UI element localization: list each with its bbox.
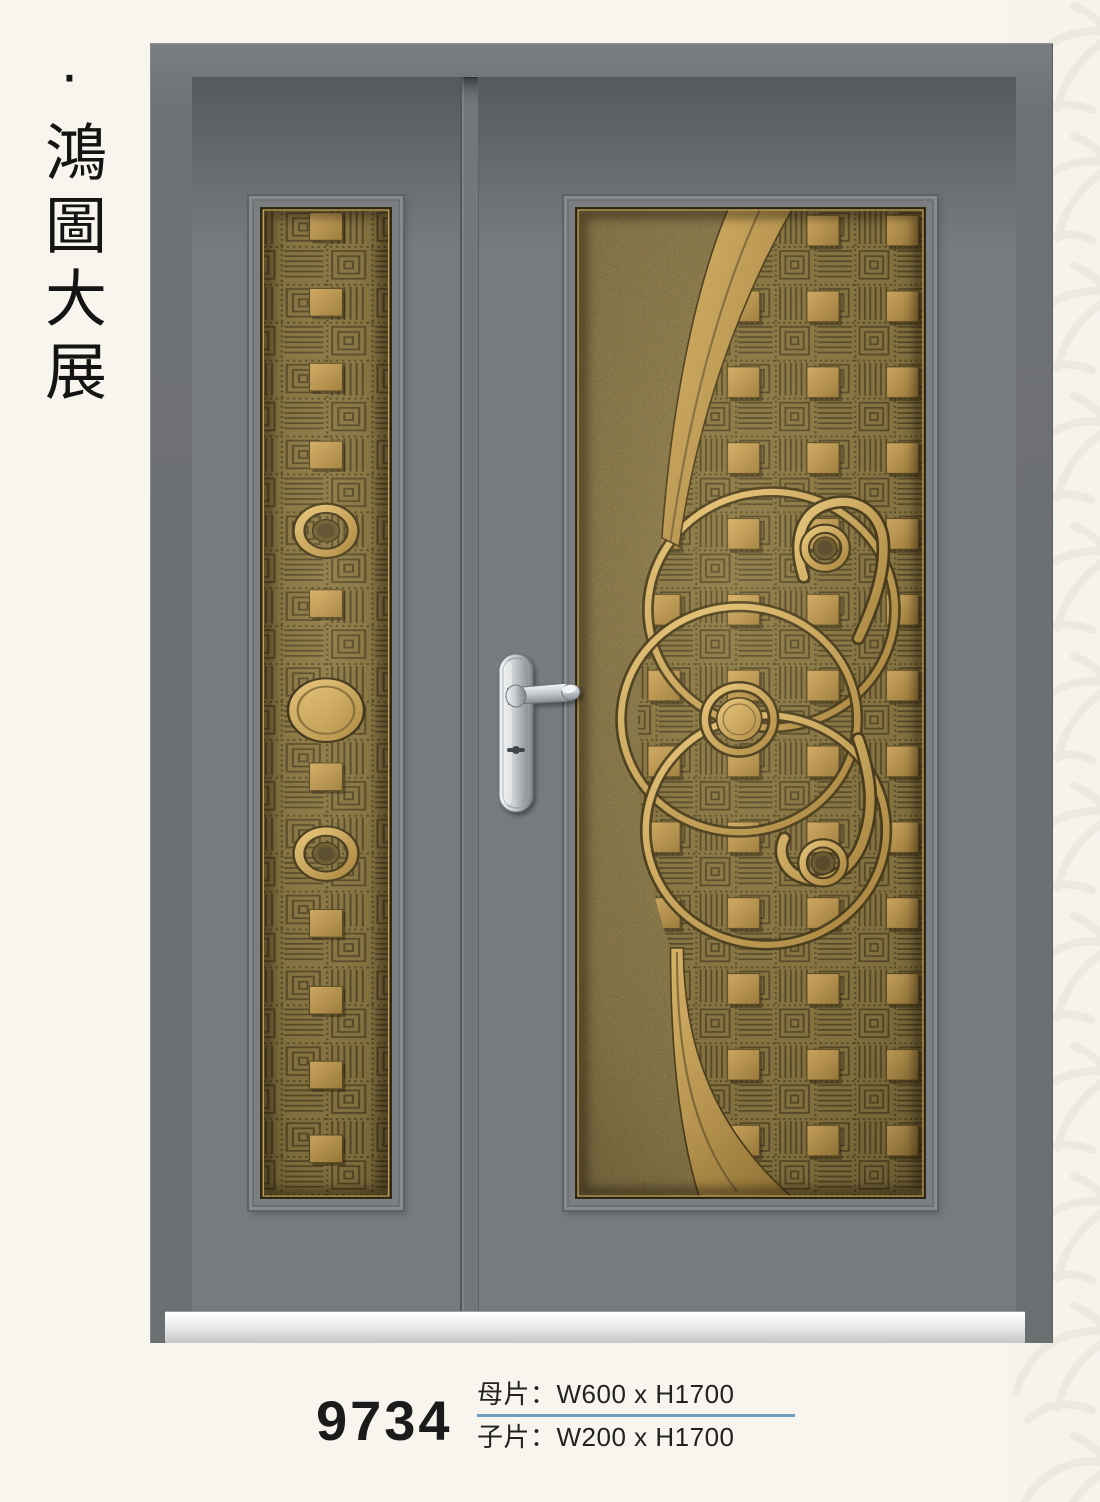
side-panel-art	[261, 208, 391, 1198]
spec-table: 母片：W600 x H1700 子片：W200 x H1700	[477, 1378, 807, 1453]
door-assembly	[150, 43, 1053, 1343]
side-bronze-panel	[261, 208, 391, 1198]
spec-mother-leaf: 母片：W600 x H1700	[477, 1378, 807, 1411]
main-panel-vignette	[576, 208, 925, 1198]
spec-child-leaf: 子片：W200 x H1700	[477, 1421, 807, 1454]
product-info: 9734 母片：W600 x H1700 子片：W200 x H1700	[0, 1378, 1100, 1478]
main-bronze-panel	[576, 208, 925, 1198]
main-panel-art	[576, 208, 925, 1198]
door-opening	[192, 77, 1015, 1343]
model-number: 9734	[316, 1388, 453, 1453]
door-handle-art	[494, 649, 586, 821]
door-handle	[494, 649, 586, 821]
main-leaf	[478, 77, 1016, 1312]
handle-lever	[505, 682, 580, 708]
side-panel-bevel	[249, 196, 403, 1210]
threshold-sill	[165, 1312, 1025, 1343]
spec-divider	[477, 1414, 795, 1417]
main-panel-bevel	[564, 196, 937, 1210]
side-leaf	[192, 77, 462, 1312]
catalog-page: ·鴻圖大展	[0, 0, 1100, 1502]
side-panel-vignette	[261, 208, 391, 1198]
brand-text: ·鴻圖大展	[38, 40, 100, 412]
